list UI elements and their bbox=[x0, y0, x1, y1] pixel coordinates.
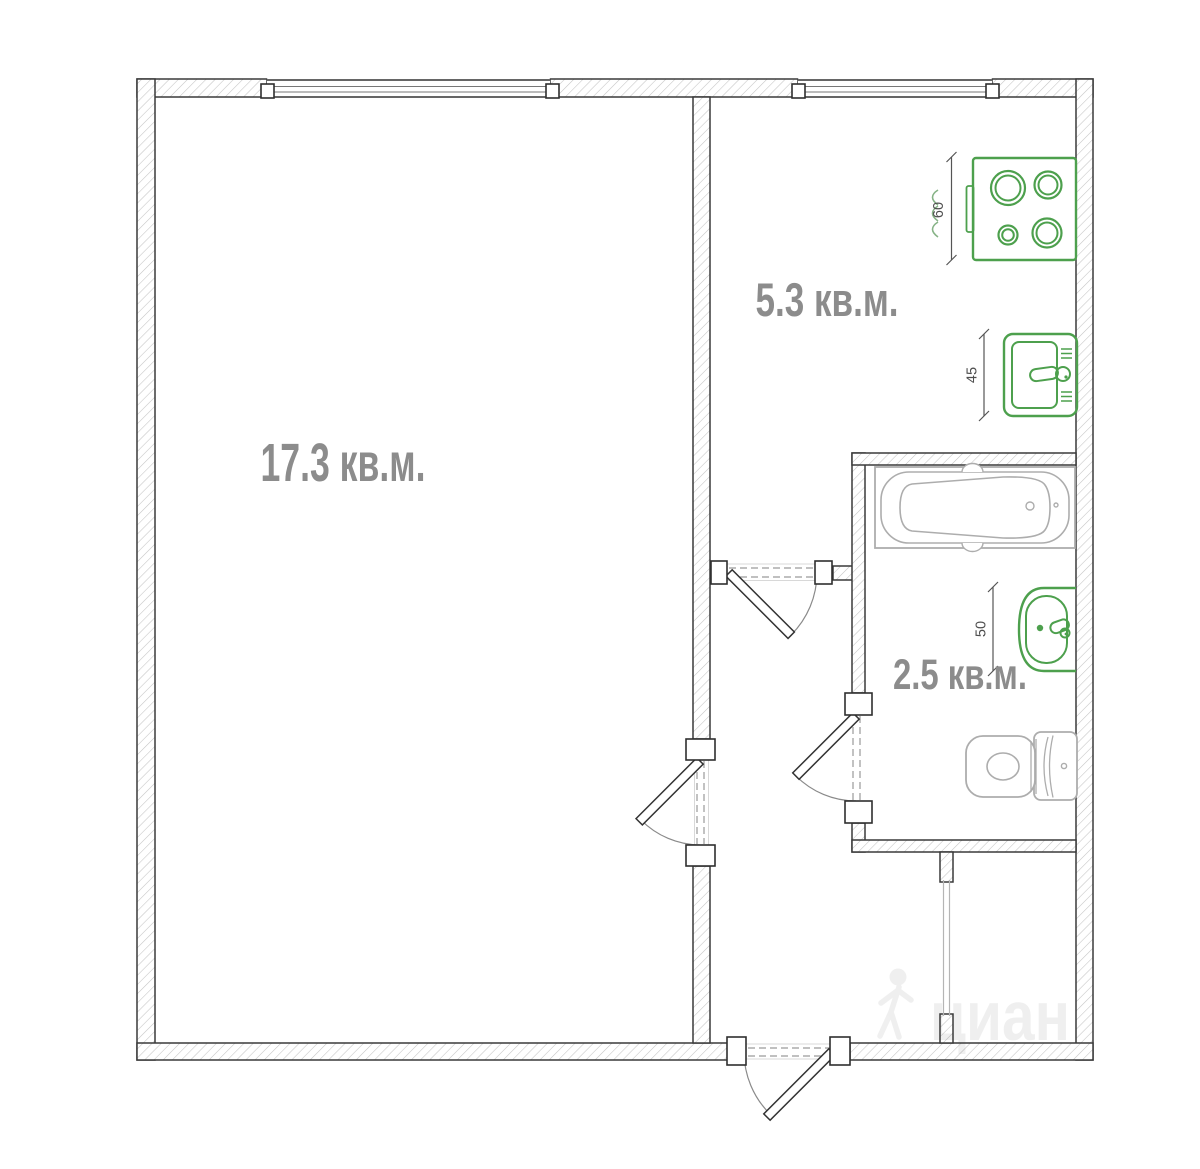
window-left bbox=[261, 79, 559, 99]
window-jamb bbox=[261, 84, 274, 98]
window-opening bbox=[267, 79, 550, 98]
wall-segment bbox=[693, 97, 710, 739]
toilet-button bbox=[1061, 763, 1066, 768]
floorplan-canvas: 60 45 50 bbox=[0, 0, 1200, 1169]
door-jamb bbox=[686, 739, 715, 760]
window-opening bbox=[798, 79, 992, 98]
faucet-dot bbox=[1064, 375, 1067, 378]
watermark-person-icon bbox=[890, 969, 907, 986]
wall-segment bbox=[137, 79, 155, 1060]
room-label-bathroom: 2.5 кв.м. bbox=[893, 651, 1027, 699]
bathtub-drain bbox=[1026, 502, 1034, 510]
wall-segment bbox=[550, 79, 798, 97]
window-right bbox=[792, 79, 999, 99]
window-jamb bbox=[546, 84, 559, 98]
wall-segment bbox=[852, 840, 1076, 852]
room-label-living: 17.3 кв.м. bbox=[261, 433, 426, 493]
door-jamb bbox=[830, 1037, 850, 1065]
room-label-kitchen: 5.3 кв.м. bbox=[756, 273, 899, 326]
door-jamb bbox=[727, 1037, 746, 1065]
toilet-tank bbox=[1034, 732, 1077, 800]
watermark-text: циан bbox=[930, 977, 1070, 1055]
wall-segment bbox=[940, 852, 953, 882]
door-jamb bbox=[711, 561, 727, 584]
door-jamb bbox=[815, 561, 832, 584]
toilet-seat bbox=[987, 753, 1019, 780]
faucet-dot bbox=[1065, 633, 1068, 636]
window-jamb bbox=[792, 84, 805, 98]
window-jamb bbox=[986, 84, 999, 98]
dimension-value: 50 bbox=[974, 621, 990, 637]
door-jamb bbox=[686, 845, 715, 866]
sink-drain bbox=[1037, 625, 1043, 631]
door-jamb bbox=[845, 801, 872, 823]
dimension-value: 45 bbox=[965, 367, 981, 383]
wall-segment bbox=[1076, 79, 1093, 1060]
toilet-icon bbox=[966, 732, 1077, 800]
wall-segment bbox=[852, 453, 865, 693]
floorplan-svg: 60 45 50 bbox=[0, 0, 1200, 1169]
door-jamb bbox=[845, 693, 872, 715]
wall-segment bbox=[693, 866, 710, 1043]
bathtub-drain-small bbox=[1054, 503, 1058, 507]
wall-segment bbox=[137, 1043, 728, 1060]
wall-segment bbox=[137, 79, 267, 97]
dimension-value: 60 bbox=[931, 202, 947, 218]
bathtub-icon bbox=[875, 464, 1075, 552]
wall-segment bbox=[852, 453, 1076, 465]
